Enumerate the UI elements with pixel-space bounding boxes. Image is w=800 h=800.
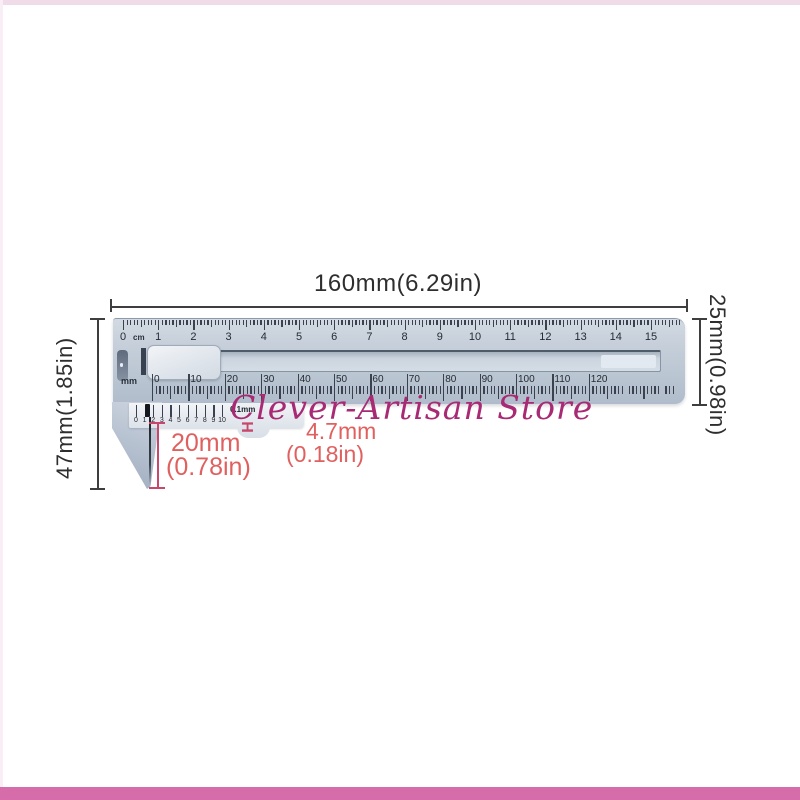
tick [496,320,497,325]
tick [317,320,318,327]
tick [366,320,367,325]
tick [158,320,159,330]
tick [236,320,237,325]
tick [669,320,670,327]
tick [151,320,152,325]
tick [454,320,455,325]
tick [170,386,171,399]
tick [246,320,247,327]
scale-number: 8 [395,331,415,343]
tick [281,320,282,327]
tick [609,320,610,325]
tick [313,320,314,325]
scale-number: 3 [219,331,239,343]
tick [267,320,268,325]
cm-unit-label: cm [133,333,145,342]
tick [320,320,321,325]
tick [292,320,293,325]
tick [531,320,532,325]
tick [306,320,307,325]
tick [163,386,164,394]
tick [162,320,163,325]
tick [222,320,223,325]
tick [507,320,508,325]
scale-number: 5 [289,331,309,343]
frame-bottom-strip [0,787,800,800]
tick [295,320,296,325]
tick [629,386,630,394]
scale-number: 9 [209,417,217,424]
tick [376,320,377,325]
tick [153,405,154,417]
tick [341,320,342,325]
tick [123,320,124,330]
tick [271,320,272,325]
tick [204,320,205,325]
scale-number: 8 [201,417,209,424]
tick [429,320,430,325]
tick [355,320,356,325]
scale-number: 60 [372,374,392,385]
tick [450,320,451,325]
tick [398,320,399,325]
tick [167,386,168,394]
tick [232,320,233,325]
jaw-depth-inches-label: (0.78in) [166,453,251,482]
tick [196,386,197,394]
tick [285,320,286,325]
tick [373,320,374,325]
jaw-edge-needle [149,417,151,485]
tick [468,320,469,325]
cm-scale: cm 0123456789101112131415 [113,318,685,348]
tick [239,320,240,325]
length-dim-end-right [686,299,688,312]
tick [647,320,648,325]
tick [348,320,349,325]
scale-number: 4 [254,331,274,343]
tick [299,320,300,330]
height-left-dim-end-top [90,318,105,320]
mm-unit-label: mm [121,376,137,386]
tick [278,320,279,325]
tick [482,320,483,325]
tick [461,320,462,325]
tick [643,386,644,399]
slot-highlight [120,363,123,367]
tick [612,320,613,325]
tick [457,320,458,327]
tick [640,320,641,325]
tick [528,320,529,327]
tick [422,320,423,327]
jaw-depth-dim-end-bottom [149,487,165,489]
tick [250,320,251,325]
tick [510,320,511,330]
tick [303,320,304,325]
tick [600,386,601,394]
tick [200,320,201,325]
tick [632,386,633,394]
tick [192,386,193,394]
tick [130,320,131,325]
tick [475,320,476,330]
product-image: 160mm(6.29in) 25mm(0.98in) 47mm(1.85in) … [0,0,800,800]
tick [324,320,325,325]
tick [205,405,206,417]
tick [369,320,370,330]
tick [479,320,480,325]
tick [603,386,604,394]
tick [591,320,592,325]
tick [144,320,145,325]
tick [383,320,384,325]
tick [622,386,623,394]
scale-number: 1 [148,331,168,343]
tick [570,320,571,325]
scale-number: 110 [554,374,574,385]
tick [222,405,223,417]
tick [545,320,546,330]
height-left-dim-line [97,318,99,490]
scale-number: 90 [482,374,502,385]
scale-number: 0 [113,331,133,343]
tick [464,320,465,325]
frame-top-strip [0,0,800,5]
jaw-depth-dim-end-top [149,422,165,424]
tick [524,320,525,325]
tick [207,320,208,325]
tick [169,320,170,325]
scale-number: 9 [430,331,450,343]
tick [651,386,652,394]
tick [134,320,135,325]
tick [148,320,149,325]
slider-mark [141,348,146,375]
tick [186,320,187,325]
tick [155,320,156,325]
height-left-dim-end-bottom [90,488,105,490]
tick [626,320,627,325]
scale-number: 6 [184,417,192,424]
tick [489,320,490,325]
scale-number: 10 [465,331,485,343]
tick [159,386,160,394]
tick [412,320,413,325]
scale-number: 7 [359,331,379,343]
tick [288,320,289,325]
tick [162,405,163,417]
scale-number: 70 [409,374,429,385]
height-right-dimension-label: 25mm(0.98in) [704,294,730,439]
tick [443,320,444,325]
tick [647,386,648,394]
tick [637,320,638,325]
vernier-zero-mark [145,404,150,417]
tick [538,320,539,325]
tick [588,320,589,325]
tick [596,386,597,394]
tick [542,320,543,325]
tick [334,320,335,330]
tick [616,320,617,330]
tick [563,320,564,327]
tick [556,320,557,325]
tick [136,405,137,417]
scale-number: 14 [606,331,626,343]
height-right-dim-line [699,318,701,405]
tick [669,386,670,394]
scale-number: 0 [154,374,174,385]
tick [394,320,395,325]
tick [207,386,208,399]
tick [567,320,568,325]
tick [517,320,518,325]
tick [274,320,275,325]
tick [426,320,427,325]
tick [172,320,173,325]
tick [577,320,578,325]
tick [359,320,360,325]
tick [658,386,659,394]
scale-number: 80 [445,374,465,385]
tick [221,386,222,394]
scale-number: 1 [141,417,149,424]
tick [362,320,363,325]
tick [605,320,606,325]
tick [176,320,177,327]
tick [193,320,194,330]
scale-number: 7 [192,417,200,424]
tick [651,320,652,330]
slider-track-end [601,355,656,368]
scale-number: 11 [500,331,520,343]
tick [170,405,171,417]
tick [654,386,655,394]
tick [185,386,186,394]
tick [218,320,219,325]
tick [331,320,332,325]
tick [183,320,184,325]
tick [188,405,189,417]
tick [387,320,388,327]
tick [179,320,180,325]
tick [535,320,536,325]
tick [574,320,575,325]
tick [211,320,212,327]
tick [618,386,619,394]
tick [197,320,198,325]
height-left-dimension-label: 47mm(1.85in) [52,334,78,479]
tick [229,320,230,330]
scale-number: 12 [535,331,555,343]
tick [156,386,157,394]
tick [215,320,216,325]
tick [655,320,656,325]
tick [203,386,204,394]
tick [141,320,142,327]
tick [352,320,353,327]
tick [218,386,219,394]
scale-number: 20 [227,374,247,385]
scale-number: 0 [132,417,140,424]
scale-number: 100 [518,374,538,385]
scale-number: 120 [591,374,611,385]
tick [633,320,634,327]
length-dimension-label: 160mm(6.29in) [198,270,598,298]
tick [225,320,226,325]
tick [440,320,441,330]
length-dimension-line [110,306,687,308]
tick [673,386,674,394]
store-watermark: Clever-Artisan Store [230,388,570,427]
tick [260,320,261,325]
jaw-depth-dim-line [157,423,159,488]
tick [581,320,582,330]
tick [179,405,180,417]
tick [514,320,515,325]
tick [181,386,182,394]
tick [662,320,663,325]
tick [503,320,504,325]
tick [199,386,200,394]
tick [679,320,680,325]
scale-number: 40 [300,374,320,385]
tick [602,320,603,325]
tick [676,320,677,325]
scale-number: 15 [641,331,661,343]
tick [521,320,522,325]
tick [584,320,585,325]
tick [345,320,346,325]
tick [486,320,487,325]
tick [636,386,637,394]
tick [630,320,631,325]
tick [595,320,596,325]
scale-number: 13 [571,331,591,343]
tick [196,405,197,417]
tick [264,320,265,330]
scale-number: 5 [175,417,183,424]
length-dim-end-left [110,299,112,312]
tick [243,320,244,325]
tick [644,320,645,325]
tick [640,386,641,394]
tick [137,320,138,325]
tick [447,320,448,325]
tick [174,386,175,394]
scale-number: 30 [263,374,283,385]
tick [493,320,494,327]
scale-number: 2 [183,331,203,343]
tick [210,386,211,394]
tick [405,320,406,330]
tick [471,320,472,325]
probe-width-inches-label: (0.18in) [286,441,364,468]
tick [415,320,416,325]
tick [127,320,128,325]
tick [614,386,615,394]
frame-left-strip [0,0,3,800]
tick [408,320,409,325]
tick [549,320,550,325]
tick [165,320,166,325]
scale-number: 10 [190,374,210,385]
scale-number: 10 [218,417,226,424]
tick [391,320,392,325]
tick [253,320,254,325]
tick [623,320,624,325]
scale-number: 6 [324,331,344,343]
tick [338,320,339,325]
tick [559,320,560,325]
tick [213,405,214,417]
tick [500,320,501,325]
tick [177,386,178,394]
tick [401,320,402,325]
tick [190,320,191,325]
tick [419,320,420,325]
tick [327,320,328,325]
tick [310,320,311,325]
scale-number: 4 [166,417,174,424]
tick [598,320,599,327]
tick [611,386,612,394]
tick [433,320,434,325]
tick [658,320,659,325]
tick [619,320,620,325]
tick [665,386,666,394]
tick [436,320,437,325]
tick [214,386,215,394]
tick [665,320,666,325]
tick [552,320,553,325]
tick [672,320,673,325]
tick [257,320,258,325]
scale-number: 50 [336,374,356,385]
slider-track [219,350,661,372]
tick [607,386,608,399]
tick [380,320,381,325]
